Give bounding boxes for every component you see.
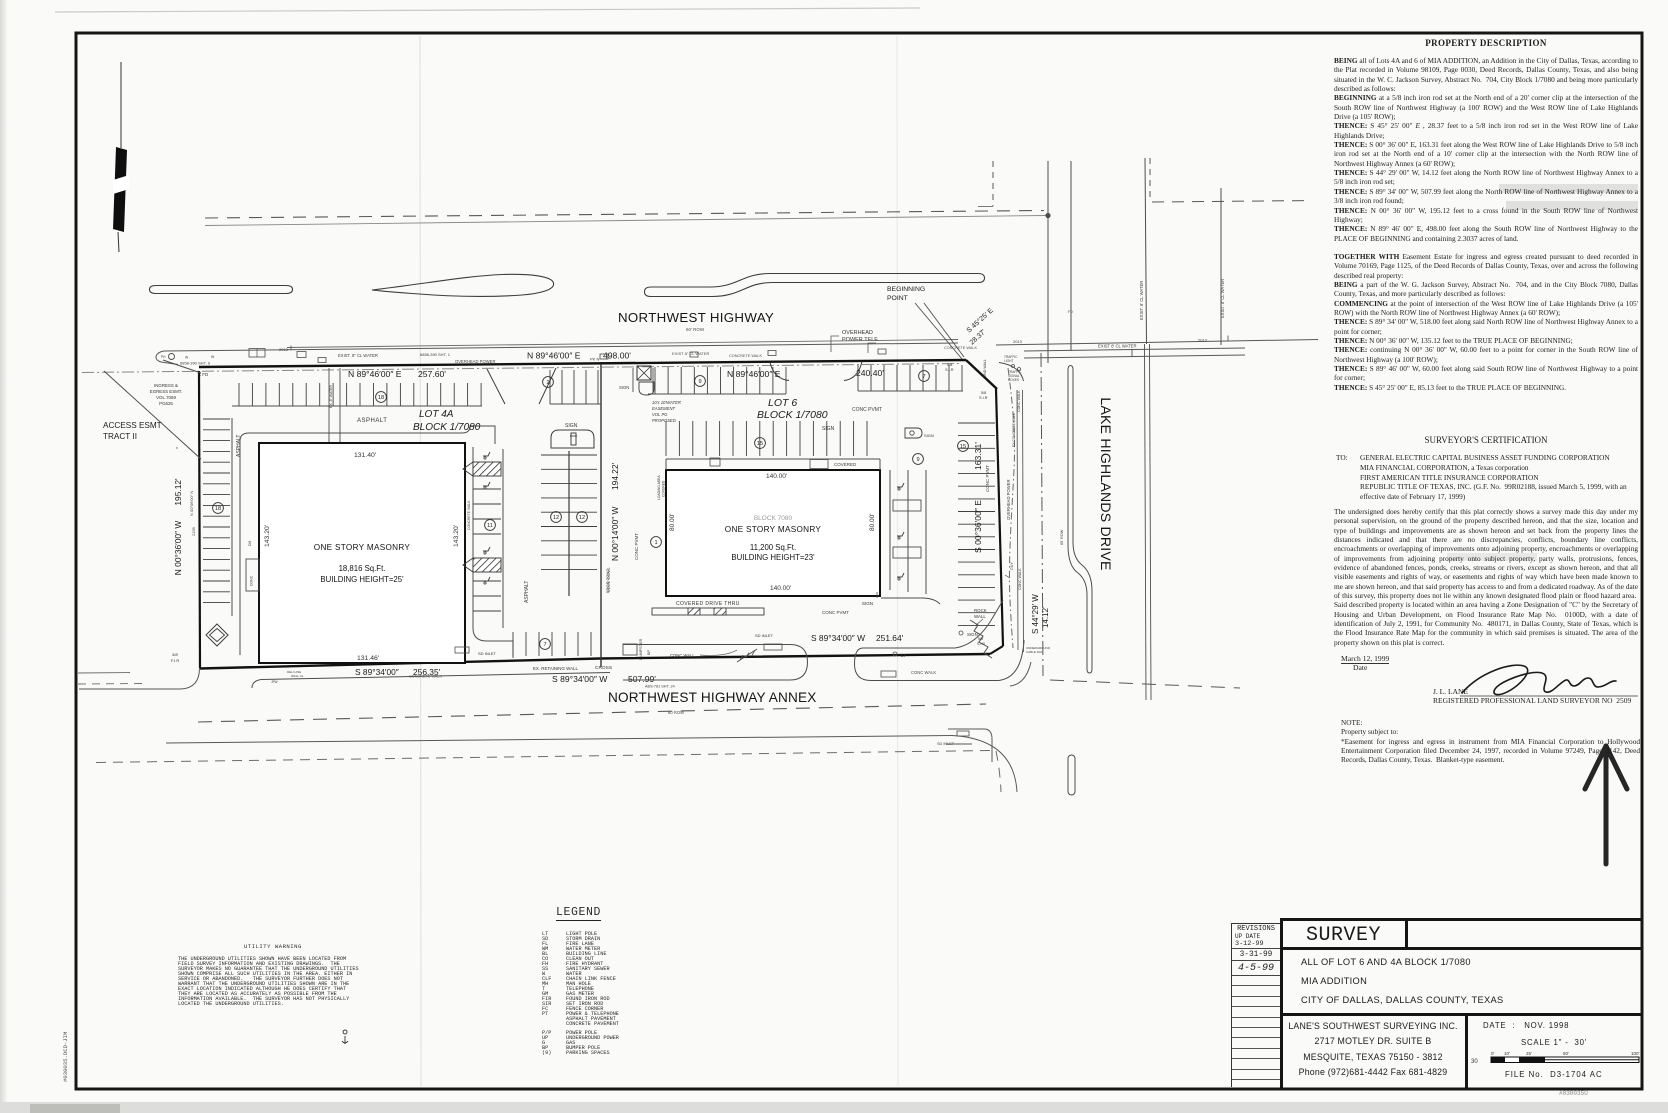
svg-text:N 89°46′00″ E: N 89°46′00″ E <box>527 351 581 361</box>
svg-text:POINT: POINT <box>887 295 908 302</box>
svg-text:11,200 Sq.Ft.: 11,200 Sq.Ft. <box>750 543 796 552</box>
svg-text:S 44°29′ W: S 44°29′ W <box>1031 594 1040 634</box>
svg-text:1: 1 <box>654 540 657 546</box>
svg-text:3/8': 3/8' <box>172 652 179 657</box>
svg-text:15: 15 <box>757 441 763 447</box>
svg-text:195.12': 195.12' <box>173 478 183 506</box>
svg-text:PK N: PK N <box>590 357 599 362</box>
svg-text:CONC PVMT: CONC PVMT <box>822 610 849 615</box>
svg-text:BLOCK 7080: BLOCK 7080 <box>754 515 793 522</box>
svg-text:140.00': 140.00' <box>770 585 791 592</box>
svg-text:PH: PH <box>161 355 166 359</box>
svg-text:TRACT II: TRACT II <box>103 432 137 441</box>
svg-text:JFW: JFW <box>271 680 278 684</box>
svg-text:5/8: 5/8 <box>947 363 952 367</box>
svg-text:CONC WALK: CONC WALK <box>911 670 936 675</box>
svg-text:W: W <box>211 355 215 359</box>
svg-text:SIGN: SIGN <box>862 601 873 606</box>
svg-text:18: 18 <box>215 506 221 512</box>
svg-text:VOL PG: VOL PG <box>652 412 668 417</box>
svg-text:CONC PVMT: CONC PVMT <box>852 407 882 413</box>
svg-text:240.40': 240.40' <box>856 368 884 378</box>
svg-text:9: 9 <box>916 457 919 463</box>
svg-text:EXIST 8' CL WATER: EXIST 8' CL WATER <box>1098 344 1137 349</box>
svg-text:EX CONCRETE WALK: EX CONCRETE WALK <box>1012 412 1016 447</box>
svg-text:15: 15 <box>960 444 966 450</box>
svg-text:COVERED: COVERED <box>834 462 857 467</box>
svg-text:WALL CL: WALL CL <box>291 674 304 678</box>
svg-text:LT: LT <box>901 653 906 658</box>
svg-text:60' ROW: 60' ROW <box>686 327 705 332</box>
svg-text:10'x 10'WATER: 10'x 10'WATER <box>652 400 681 405</box>
svg-text:PG625: PG625 <box>159 401 173 406</box>
svg-text:194.22': 194.22' <box>610 462 620 490</box>
svg-text:CONCRETE WALK: CONCRETE WALK <box>729 354 762 358</box>
svg-text:F.I.R: F.I.R <box>171 658 179 663</box>
svg-text:LOADING AREA: LOADING AREA <box>657 475 661 500</box>
svg-text:OVERHEAD POWER: OVERHEAD POWER <box>455 359 496 364</box>
svg-text:50': 50' <box>1563 1051 1569 1056</box>
svg-text:OVERHEAD: OVERHEAD <box>842 330 873 336</box>
svg-text:BEGINNING: BEGINNING <box>887 286 925 293</box>
svg-text:SIGN: SIGN <box>967 632 978 637</box>
svg-text:BLOCK 1/7080: BLOCK 1/7080 <box>757 409 828 421</box>
svg-text:12: 12 <box>553 515 559 521</box>
svg-text:CONC: CONC <box>250 575 254 586</box>
svg-text:INGRESS &: INGRESS & <box>154 383 178 388</box>
svg-text:LIGHT: LIGHT <box>1004 359 1013 363</box>
svg-text:CONC WALK: CONC WALK <box>1017 390 1021 412</box>
svg-text:140.00': 140.00' <box>766 473 787 480</box>
svg-text:S 00°36′00″ E: S 00°36′00″ E <box>973 500 983 553</box>
svg-text:ASPHALT: ASPHALT <box>357 418 387 424</box>
svg-text:EXIST. 8' CL WATER: EXIST. 8' CL WATER <box>1220 279 1225 318</box>
svg-text:6858-390 SHT. 1: 6858-390 SHT. 1 <box>420 352 451 357</box>
svg-text:CABLE SGN: CABLE SGN <box>1026 650 1043 654</box>
svg-text:0': 0' <box>1491 1051 1495 1056</box>
svg-text:CONC WALL: CONC WALL <box>670 653 695 658</box>
svg-text:2013: 2013 <box>1013 339 1023 344</box>
svg-text:ASPHALT: ASPHALT <box>236 435 242 457</box>
svg-text:6858-390 SHT. 9: 6858-390 SHT. 9 <box>180 361 211 366</box>
svg-text:80.00': 80.00' <box>669 513 676 531</box>
svg-text:LOT 6: LOT 6 <box>768 397 797 409</box>
svg-text:100': 100' <box>1631 1051 1640 1056</box>
svg-text:7: 7 <box>543 642 546 648</box>
svg-text:END WALL: END WALL <box>983 359 987 377</box>
svg-text:S.I.R: S.I.R <box>977 642 985 646</box>
svg-text:COVERED DRIVE THRU: COVERED DRIVE THRU <box>676 601 740 607</box>
svg-text:EASEMENT: EASEMENT <box>652 406 675 411</box>
svg-text:10': 10' <box>1504 1051 1510 1056</box>
svg-text:9: 9 <box>698 379 701 385</box>
svg-text:CONC PVMT: CONC PVMT <box>985 465 990 492</box>
svg-text:25': 25' <box>1526 1051 1532 1056</box>
svg-text:143.20': 143.20' <box>264 525 271 547</box>
svg-text:S 89°34′00″: S 89°34′00″ <box>355 667 399 677</box>
svg-text:LOT 4A: LOT 4A <box>419 409 454 420</box>
svg-text:GUY: GUY <box>1010 562 1014 570</box>
svg-text:EX. 8" WATER: EX. 8" WATER <box>329 385 333 408</box>
svg-text:N 00°14′00″ W: N 00°14′00″ W <box>610 506 620 561</box>
svg-text:7: 7 <box>922 374 925 380</box>
svg-text:18,816 Sq.Ft.: 18,816 Sq.Ft. <box>339 564 386 573</box>
svg-text:18: 18 <box>378 395 384 401</box>
svg-text:S.I.R: S.I.R <box>979 396 988 400</box>
svg-text:EGRESS ESMT.: EGRESS ESMT. <box>150 389 182 394</box>
svg-text:EX. RETAINING WALL: EX. RETAINING WALL <box>533 666 578 671</box>
svg-text:163.31': 163.31' <box>973 442 983 470</box>
svg-text:SD INLET: SD INLET <box>478 651 497 656</box>
svg-text:2013: 2013 <box>1198 338 1208 343</box>
svg-text:WALL: WALL <box>974 614 986 619</box>
svg-text:ABS-781 SHT. 24: ABS-781 SHT. 24 <box>645 685 675 689</box>
svg-text:EDGE CONC.: EDGE CONC. <box>606 567 611 592</box>
svg-text:N 89°46′00″ E: N 89°46′00″ E <box>348 369 402 379</box>
svg-text:BLOCK 1/7080: BLOCK 1/7080 <box>413 422 481 433</box>
svg-text:507.99': 507.99' <box>628 674 656 684</box>
svg-text:x: x <box>176 445 178 450</box>
svg-text:131.46': 131.46' <box>357 655 379 662</box>
svg-text:POWER TELE: POWER TELE <box>842 337 878 343</box>
svg-text:EXIST. 8" CL WATER: EXIST. 8" CL WATER <box>338 353 378 358</box>
svg-text:N 00°36′00″ W: N 00°36′00″ W <box>173 521 183 576</box>
svg-text:ONE STORY MASONRY: ONE STORY MASONRY <box>725 525 822 534</box>
svg-text:2199: 2199 <box>191 526 196 536</box>
svg-text:NORTHWEST HIGHWAY: NORTHWEST HIGHWAY <box>618 310 774 325</box>
svg-text:2013: 2013 <box>279 347 289 352</box>
svg-text:EXIST. 8' CL WATER: EXIST. 8' CL WATER <box>1139 281 1144 320</box>
svg-text:COVERED: COVERED <box>662 480 666 497</box>
svg-text:CROSS: CROSS <box>595 665 612 671</box>
svg-text:ONE STORY MASONRY: ONE STORY MASONRY <box>314 543 411 552</box>
svg-text:131.40': 131.40' <box>354 452 376 459</box>
svg-text:143.20': 143.20' <box>453 525 460 547</box>
svg-text:ASPHALT: ASPHALT <box>524 581 530 603</box>
svg-text:30: 30 <box>1471 1059 1478 1065</box>
svg-text:BUILDING HEIGHT=23': BUILDING HEIGHT=23' <box>731 553 815 562</box>
svg-text:ROCK: ROCK <box>974 608 987 613</box>
svg-text:OVERHEAD POWER: OVERHEAD POWER <box>1006 480 1011 521</box>
svg-text:S 89°34′00″ W: S 89°34′00″ W <box>552 674 608 684</box>
svg-text:SIGN: SIGN <box>565 423 578 429</box>
svg-text:256.35': 256.35' <box>413 667 441 677</box>
svg-text:65' ROW: 65' ROW <box>1060 529 1064 545</box>
svg-text:CONCRETE WALK: CONCRETE WALK <box>467 500 471 530</box>
svg-text:BUILDING HEIGHT=25': BUILDING HEIGHT=25' <box>320 575 404 584</box>
svg-text:251.64': 251.64' <box>876 633 904 643</box>
svg-text:DUMPSTER: DUMPSTER <box>639 638 643 660</box>
svg-text:12: 12 <box>579 515 585 521</box>
svg-text:S 89°34′00″ W: S 89°34′00″ W <box>811 633 865 643</box>
svg-text:11: 11 <box>487 523 493 529</box>
svg-text:SIGN: SIGN <box>924 433 934 438</box>
svg-text:5/8: 5/8 <box>981 391 986 395</box>
svg-text:N 00°06′00″ N: N 00°06′00″ N <box>189 491 194 516</box>
svg-text:NORTHWEST HIGHWAY ANNEX: NORTHWEST HIGHWAY ANNEX <box>608 690 817 705</box>
svg-text:80.00': 80.00' <box>869 513 876 531</box>
svg-text:VOL.7069: VOL.7069 <box>156 395 176 400</box>
svg-text:2: 2 <box>546 380 549 386</box>
svg-text:SD INLET: SD INLET <box>755 633 774 638</box>
svg-text:SIGN: SIGN <box>822 426 835 432</box>
svg-text:SIGN: SIGN <box>619 385 629 390</box>
svg-text:CONC PVMT: CONC PVMT <box>634 533 639 560</box>
svg-text:257.60': 257.60' <box>418 369 446 379</box>
svg-text:PROPOSED: PROPOSED <box>652 418 676 423</box>
svg-text:ACCESS ESMT: ACCESS ESMT <box>103 421 162 430</box>
svg-text:CONC WALK: CONC WALK <box>1018 568 1022 590</box>
svg-text:5/8': 5/8' <box>978 637 984 641</box>
svg-text:DM: DM <box>248 541 252 546</box>
svg-text:FD: FD <box>1068 310 1073 314</box>
svg-text:BP: BP <box>647 649 651 655</box>
svg-text:W: W <box>185 356 189 360</box>
svg-text:LAKE HIGHLANDS DRIVE: LAKE HIGHLANDS DRIVE <box>1098 397 1114 570</box>
